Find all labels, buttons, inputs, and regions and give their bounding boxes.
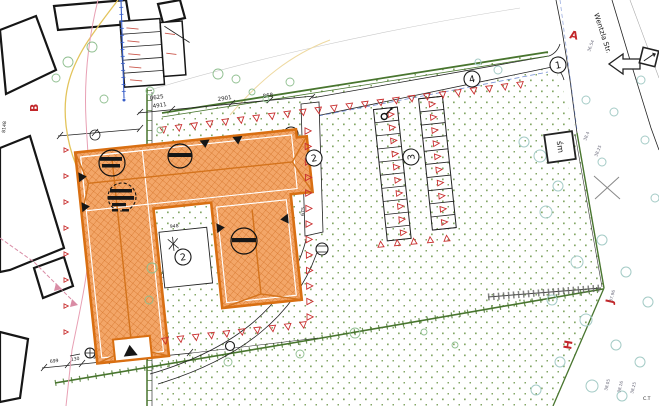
survey-letter-a: A [568, 28, 580, 43]
street-name-label: Wentzla Str. [592, 12, 613, 54]
manhole [316, 243, 328, 255]
dim-label: 4911 [152, 102, 167, 110]
dim-label: 130 [71, 356, 81, 363]
bin-shed-label: śm [555, 140, 567, 153]
dim-label: 948 [170, 223, 179, 230]
tree-removal-x-icon [594, 176, 620, 199]
north-arrow-icon [609, 54, 640, 74]
dim-label: 699 [50, 358, 60, 365]
svg-text:3: 3 [406, 153, 418, 160]
entrance-symbol-icon [639, 47, 658, 66]
spot-elevation: 38.4 [582, 131, 590, 142]
spot-elevation: 38.25 [593, 144, 602, 157]
site-plan-page: 0625 4911 2901 868 699 130 944 944 948 3… [0, 0, 659, 406]
spot-elevation: 38.05 [603, 378, 611, 391]
survey-letter-b: B [28, 104, 41, 112]
manhole [226, 342, 235, 351]
dim-label: 8148 [1, 121, 8, 133]
spot-elevation: 36.54 [586, 39, 595, 52]
corner-note: C.T [643, 396, 651, 402]
spot-elevation: 38.25 [629, 381, 637, 394]
site-plan-canvas: 0625 4911 2901 868 699 130 944 944 948 3… [0, 0, 659, 406]
bin-shed: śm [544, 131, 576, 163]
